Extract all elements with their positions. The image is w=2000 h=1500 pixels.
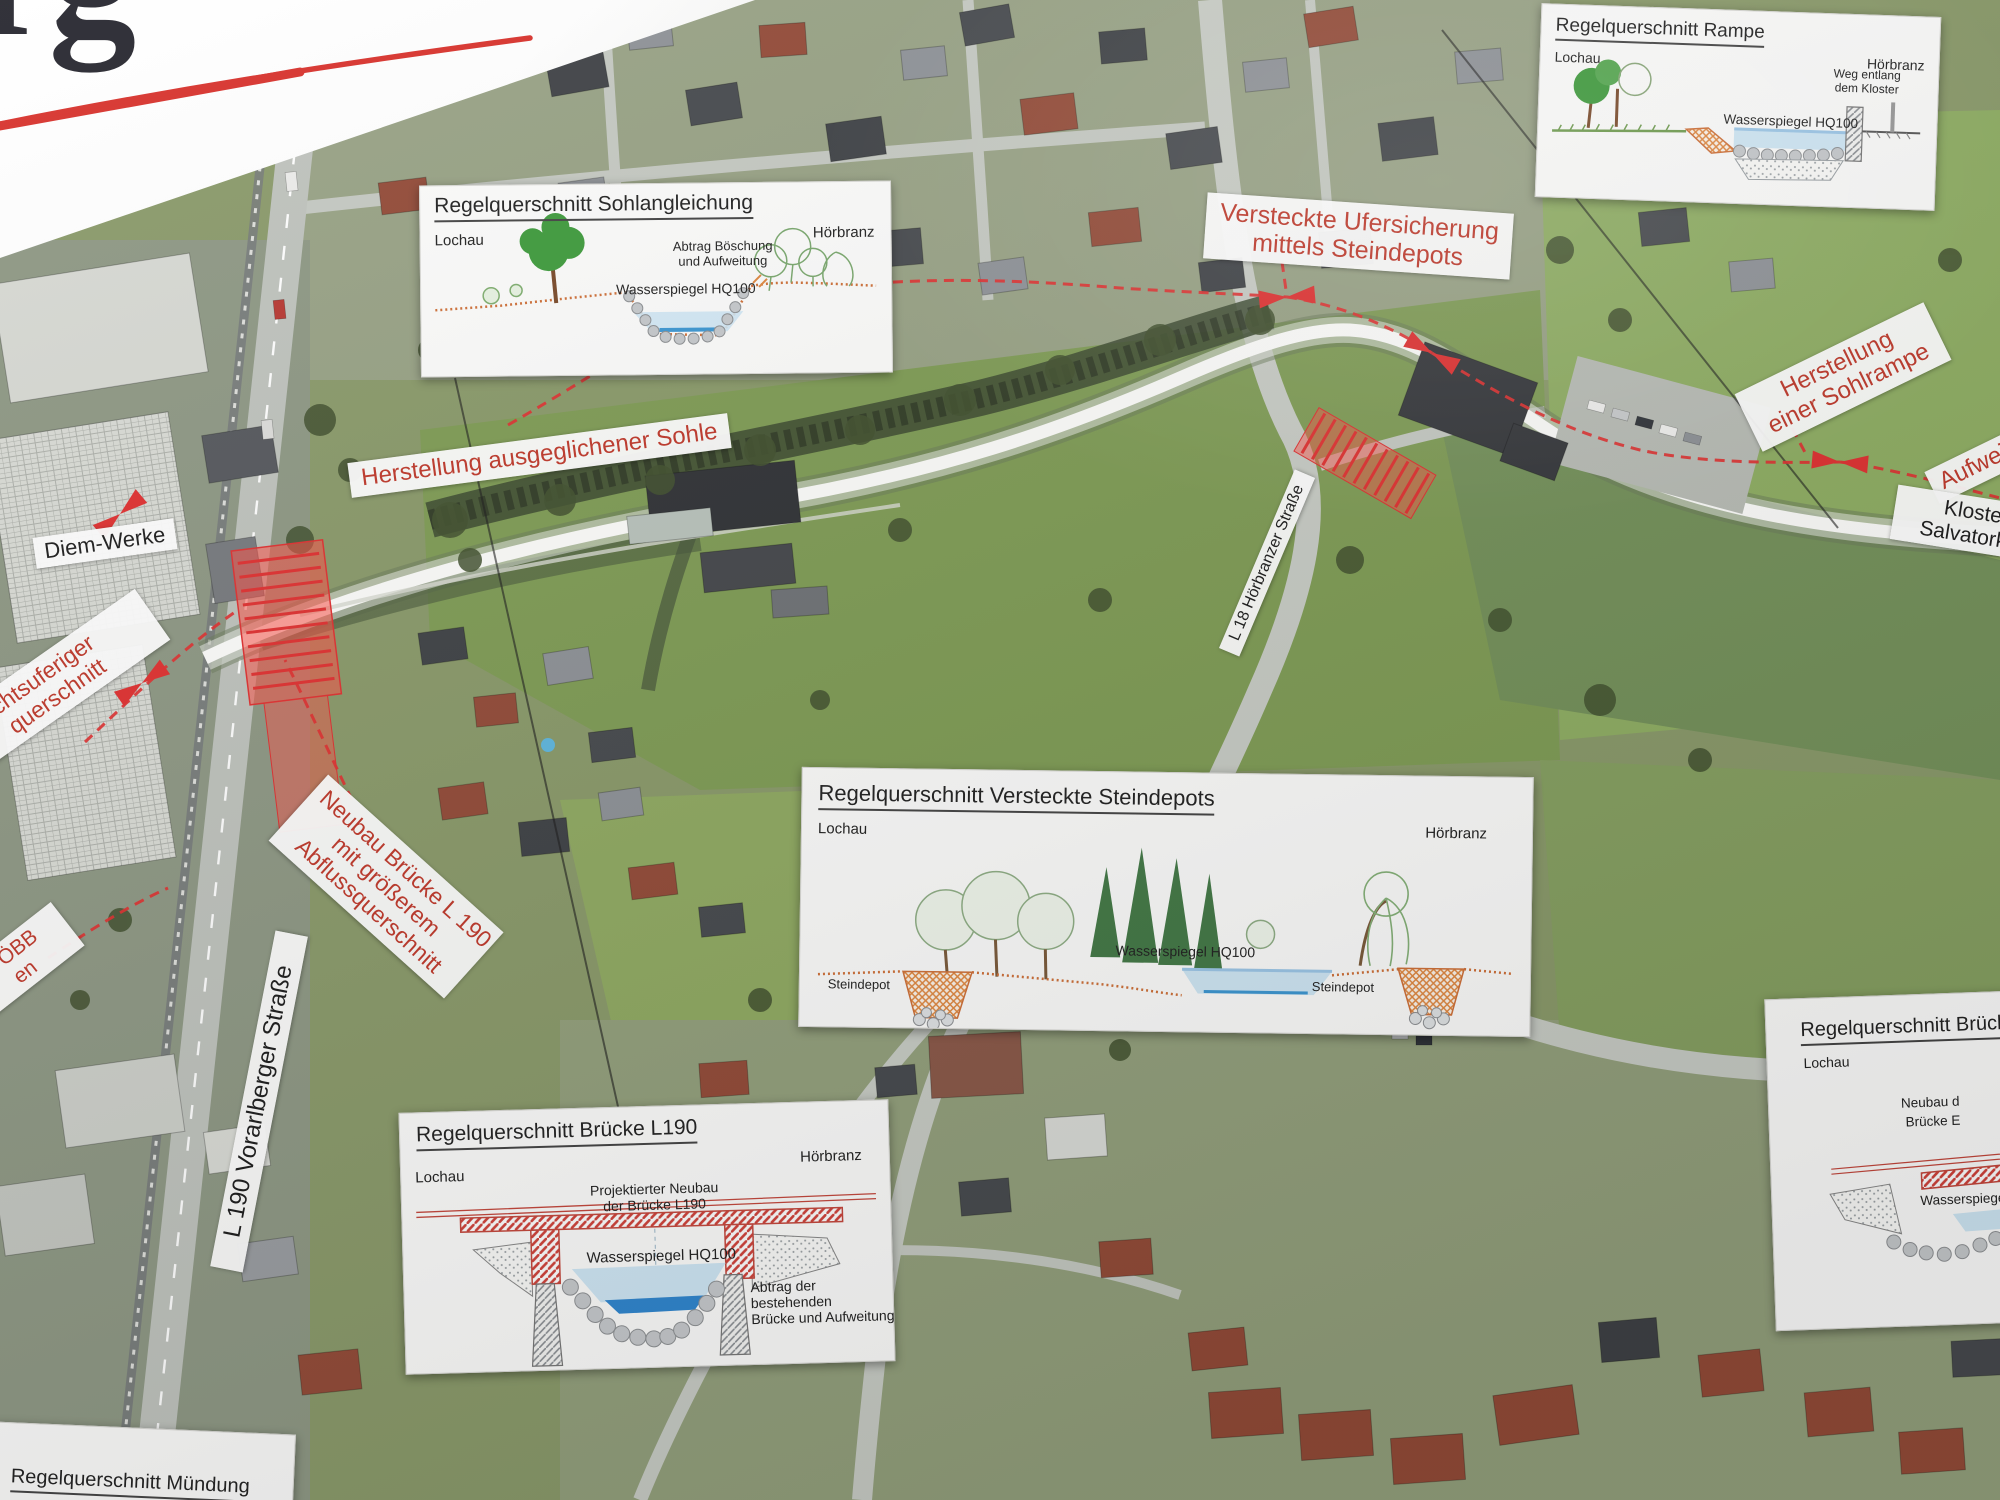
inset-depot-left-label: Steindepot [828, 976, 890, 992]
inset-rampe: Regelquerschnitt Rampe Lochau Hörbranz W… [1535, 3, 1942, 211]
inset-sohlangleichung: Regelquerschnitt Sohlangleichung Lochau … [419, 181, 893, 378]
inset-note: Abtrag Böschungund Aufweitung [673, 238, 773, 269]
inset-title: Regelquerschnitt Mündung [10, 1465, 250, 1500]
inset-muendung: Regelquerschnitt Mündung [0, 1421, 296, 1500]
pool [541, 738, 555, 752]
inset-water-label: Wasserspiegel HQ100 [616, 280, 756, 297]
inset-note: Neubau d [1901, 1094, 1960, 1111]
inset-water-label: Wasserspiegel [1920, 1190, 2000, 1208]
inset-left-label: Lochau [818, 820, 867, 838]
steindepot-right [1397, 968, 1464, 1015]
bridge-pier [530, 1283, 562, 1366]
poster-photo: Versteckte Ufersicherung mittels Steinde… [0, 0, 2000, 1500]
aerial-map [0, 0, 2000, 1500]
inset-right-label: Hörbranz [800, 1147, 862, 1166]
inset-bruecke-partial: Regelquerschnitt Brücke Lochau Neubau d … [1764, 991, 2000, 1331]
inset-note: Weg entlangdem Kloster [1822, 66, 1913, 97]
inset-steindepots: Regelquerschnitt Versteckte Steindepots … [798, 767, 1534, 1037]
logo-text: rg [0, 0, 133, 63]
inset-water-label: Wasserspiegel HQ100 [1110, 942, 1260, 960]
inset-title: Regelquerschnitt Sohlangleichung [434, 191, 753, 222]
inset-left-label: Lochau [434, 232, 483, 250]
inset-bruecke-l190: Regelquerschnitt Brücke L190 Lochau Hörb… [398, 1099, 895, 1375]
inset-note-right: Abtrag der bestehendenBrücke und Aufweit… [750, 1275, 896, 1327]
inset-note-top: Projektierter Neubauder Brücke L190 [561, 1178, 747, 1215]
inset-left-label: Lochau [1554, 49, 1600, 67]
inset-right-label: Hörbranz [1425, 825, 1487, 843]
inset-right-label: Hörbranz [813, 224, 875, 242]
inset-left-label: Lochau [415, 1168, 465, 1186]
inset-left-label: Lochau [1803, 1053, 1849, 1071]
inset-note: Brücke E [1905, 1113, 1960, 1130]
inset-title: Regelquerschnitt Versteckte Steindepots [818, 780, 1215, 816]
inset-depot-right-label: Steindepot [1312, 979, 1374, 995]
